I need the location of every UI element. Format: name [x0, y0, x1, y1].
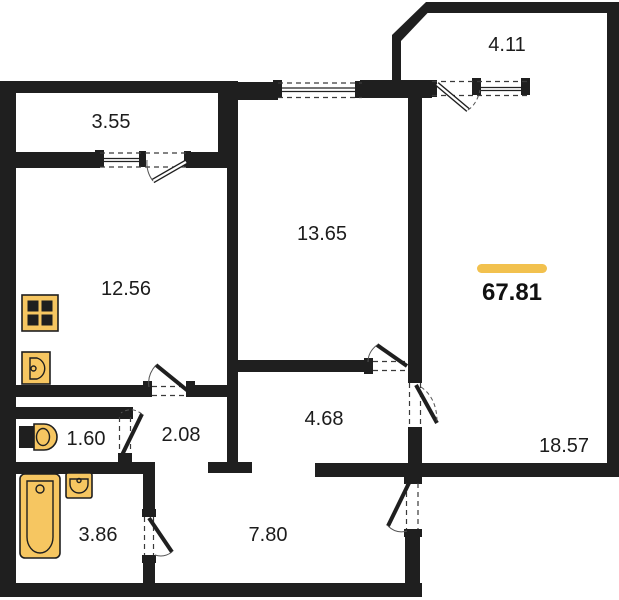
- door-kitchen: [149, 365, 188, 396]
- toilet-icon: [19, 424, 57, 450]
- window-stop: [431, 80, 437, 97]
- total-area-label: 67.81: [482, 279, 542, 306]
- wall-balcony-right-left: [392, 35, 401, 82]
- stove-icon: [22, 295, 58, 331]
- room-label-kitchen: 12.56: [101, 278, 151, 300]
- window-bedroom: [278, 83, 362, 98]
- wall-stop-kitchen-l: [143, 381, 152, 397]
- wall-kitchen-bottom-a: [0, 385, 143, 397]
- room-label-wc: 1.60: [67, 428, 106, 450]
- room-label-bathroom: 3.86: [79, 524, 118, 546]
- floor-plan: 67.81 3.55 4.11 13.65 12.56 18.57 1.60 2…: [0, 0, 619, 600]
- door-entrance: [388, 483, 418, 532]
- wall-entry-hinge: [404, 477, 422, 484]
- door-bedroom: [368, 345, 408, 371]
- wall-divider-bed-living-b: [408, 427, 422, 467]
- wall-tfoot: [208, 462, 252, 473]
- door-balcony-left: [147, 160, 186, 181]
- wall-bath-right-b: [143, 557, 155, 597]
- room-label-hallway: 7.80: [249, 524, 288, 546]
- bathtub-icon: [20, 474, 60, 558]
- wall-divider-kitchen-bedroom: [227, 160, 238, 462]
- fixtures: [19, 295, 92, 558]
- wall-right: [607, 2, 619, 477]
- wall-wc-divider-top: [118, 407, 132, 417]
- room-label-bedroom: 13.65: [297, 223, 347, 245]
- door-bathroom: [145, 517, 173, 556]
- wall-bedroom-top-b: [360, 80, 432, 98]
- wall-corridor-top: [238, 360, 364, 372]
- room-label-corridor: 4.68: [305, 408, 344, 430]
- washbasin-icon: [66, 473, 92, 498]
- total-area-accent-bar: [477, 264, 547, 273]
- wall-kitchen-bottom-b: [195, 385, 238, 397]
- wall-bottom-row: [315, 463, 619, 477]
- window-stop: [521, 78, 530, 95]
- room-label-balcony-left: 3.55: [92, 111, 131, 133]
- kitchen-sink-icon: [22, 352, 50, 384]
- wall-balcony-right-top: [426, 2, 619, 13]
- wall-wc-top: [16, 407, 133, 419]
- wall-divider-bed-living-a: [408, 97, 422, 383]
- wall-left: [0, 81, 16, 597]
- wall-balcony-left-top: [0, 81, 238, 93]
- wall-entry-lower: [405, 535, 420, 587]
- room-label-living-room: 18.57: [539, 435, 589, 457]
- wall-kitchen-top-a: [16, 152, 100, 168]
- room-label-balcony-right: 4.11: [488, 34, 525, 56]
- door-living-room: [410, 383, 438, 427]
- room-label-inner-hall: 2.08: [162, 424, 201, 446]
- wall-stop-bath-t: [142, 509, 156, 517]
- wall-bedroom-top-a: [218, 82, 278, 100]
- wall-bottom: [0, 583, 422, 597]
